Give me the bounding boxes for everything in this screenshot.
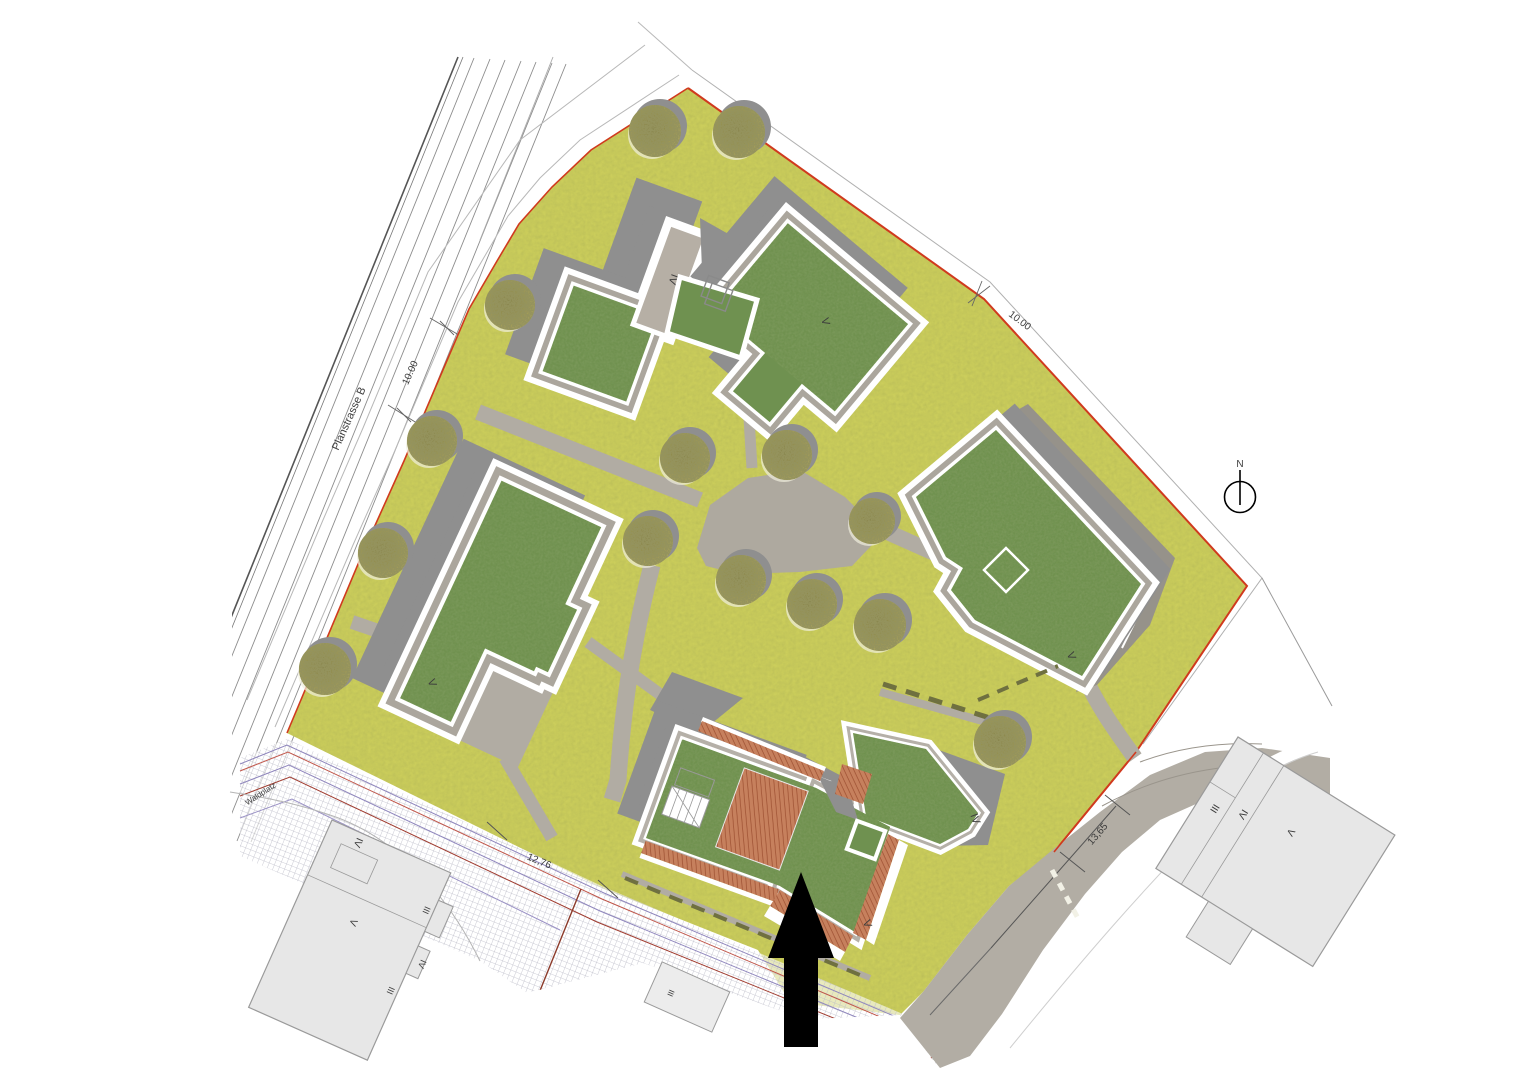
svg-text:N: N (1236, 459, 1243, 470)
